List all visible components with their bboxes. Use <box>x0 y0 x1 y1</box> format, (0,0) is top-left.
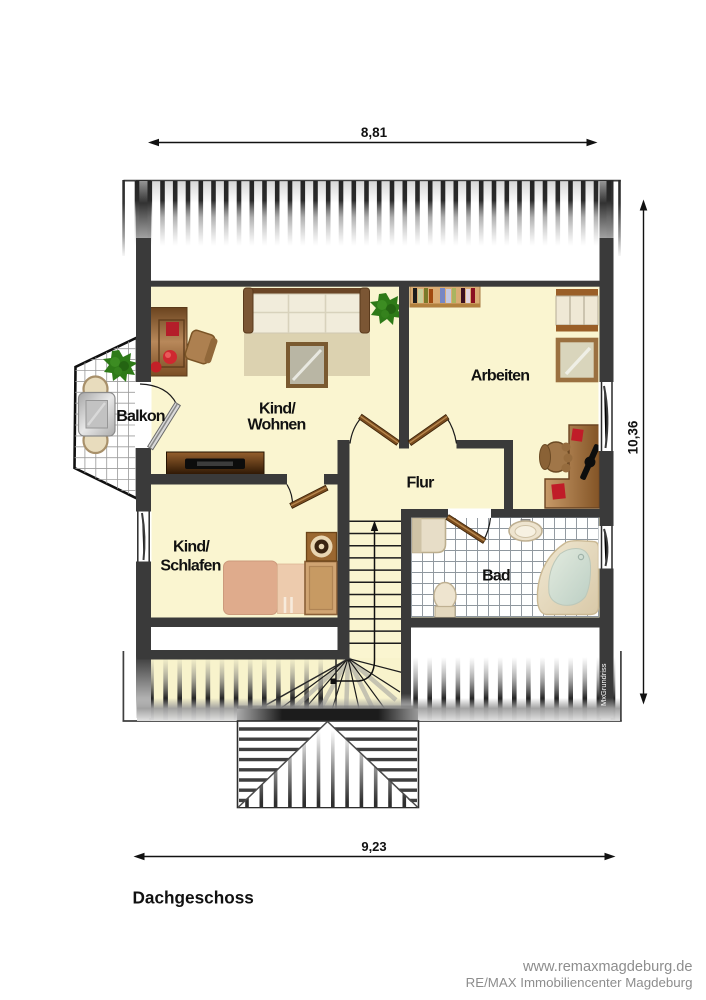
svg-text:MxGrundriss: MxGrundriss <box>599 663 608 706</box>
svg-text:Flur: Flur <box>406 475 434 492</box>
svg-text:RE/MAX Immobiliencenter Magdeb: RE/MAX Immobiliencenter Magdeburg <box>466 975 693 990</box>
svg-text:8,81: 8,81 <box>361 125 388 140</box>
svg-text:Balkon: Balkon <box>116 408 165 425</box>
svg-text:www.remaxmagdeburg.de: www.remaxmagdeburg.de <box>522 959 693 975</box>
svg-text:10,36: 10,36 <box>626 420 641 454</box>
svg-text:Bad: Bad <box>482 568 510 585</box>
svg-text:9,23: 9,23 <box>361 839 386 854</box>
svg-text:Wohnen: Wohnen <box>247 417 305 434</box>
svg-text:Kind/: Kind/ <box>259 401 296 418</box>
svg-text:Arbeiten: Arbeiten <box>471 368 530 385</box>
svg-text:Schlafen: Schlafen <box>160 558 220 575</box>
svg-text:Kind/: Kind/ <box>173 539 210 556</box>
svg-text:Dachgeschoss: Dachgeschoss <box>133 888 254 908</box>
